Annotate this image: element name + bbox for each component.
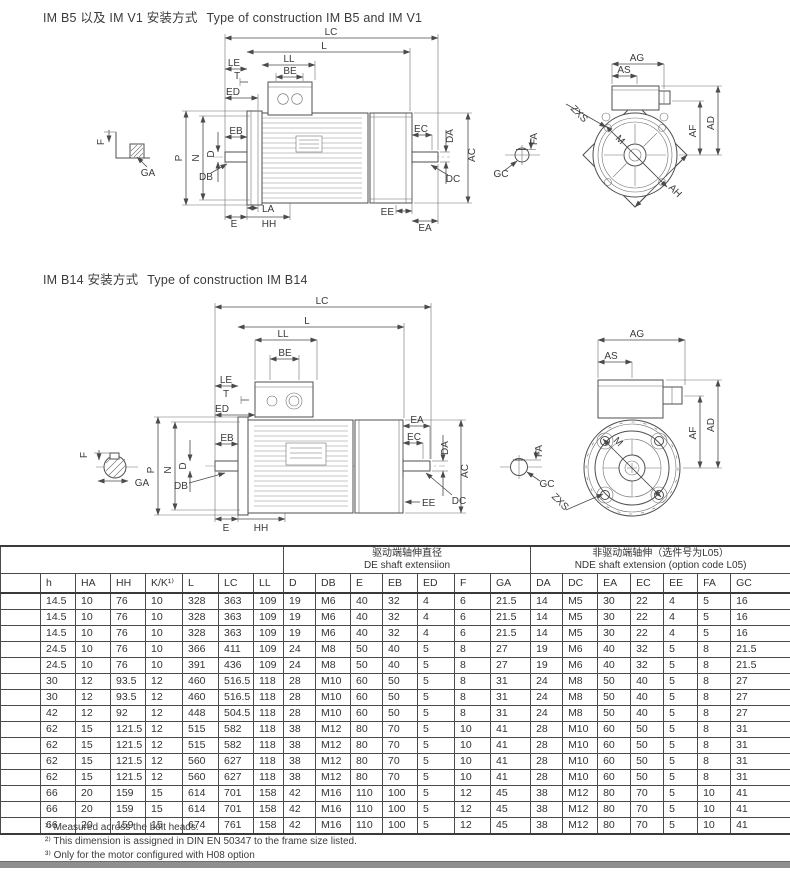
dim-p-label: P [146,466,157,473]
dim-ll-label: LL [283,54,295,65]
dim-t-label: T [234,71,240,82]
table-cell: 40 [631,689,664,705]
table-cell: 12 [76,705,111,721]
table-cell: 6 [455,609,491,625]
table-cell: 5 [418,689,455,705]
table-cell: 41 [491,737,531,753]
table-cell: 15 [76,769,111,785]
table-cell [1,705,41,721]
table-cell: 45 [491,801,531,817]
table-cell: 12 [146,721,183,737]
dim-dc-label: DC [452,496,466,507]
table-cell [1,721,41,737]
dim-da-label: DA [445,129,456,143]
dim-t-label: T [223,389,229,400]
table-cell: 80 [351,769,383,785]
table-cell: M12 [316,721,351,737]
table-cell: M10 [563,753,598,769]
table-cell: 14 [531,609,563,625]
b5-flange [247,111,262,205]
table-cell: 70 [631,785,664,801]
dim-da-label: DA [440,441,451,455]
table-cell: 41 [731,785,790,801]
table-cell: 12 [146,769,183,785]
table-cell: M8 [563,673,598,689]
catalog-page: { "sections": [ {"title_zh": "IM B5 以及 I… [0,0,790,871]
table-cell: 19 [284,609,316,625]
table-cell: M6 [316,609,351,625]
table-cell: 50 [598,705,631,721]
table-cell: 40 [631,673,664,689]
dim-lc-label: LC [325,27,338,38]
table-body: 14.510761032836310919M640324621.514M5302… [1,593,790,834]
table-cell: 30 [41,689,76,705]
table-cell: 28 [531,769,563,785]
table-cell: M10 [316,689,351,705]
table-cell: 31 [731,737,790,753]
table-cell: 24 [284,657,316,673]
table-cell: 60 [598,737,631,753]
dim-db-label: DB [174,481,188,492]
table-cell: 8 [698,721,731,737]
dim-d-label: D [178,462,189,469]
dim-e-label: E [223,523,230,534]
table-cell: M12 [563,817,598,834]
table-cell: M8 [316,641,351,657]
table-row: 66201591561470115842M161101005124538M128… [1,801,790,817]
table-cell: 40 [631,705,664,721]
table-cell: 28 [531,753,563,769]
col-header-db: DB [316,573,351,593]
dim-gc-label: GC [494,169,509,180]
footnote-1: ¹⁾ Measured across the bolt heads. [45,821,357,835]
table-cell: 50 [598,673,631,689]
table-cell: 8 [698,641,731,657]
table-cell: 15 [76,721,111,737]
table-cell: 32 [631,641,664,657]
table-cell: 92 [111,705,146,721]
table-cell: 363 [219,609,254,625]
table-cell: 582 [219,737,254,753]
table-cell: 42 [284,785,316,801]
table-cell: 24 [284,641,316,657]
section2-title-en: Type of construction IM B14 [147,273,307,287]
table-cell: 14.5 [41,593,76,610]
group-nde-en: NDE shaft extension (option code L05) [533,560,788,572]
table-cell: 328 [183,625,219,641]
dim-zxs-label: ZXS [549,491,571,513]
footnotes: ¹⁾ Measured across the bolt heads. ²⁾ Th… [45,821,357,862]
table-cell: M6 [316,625,351,641]
table-cell: 158 [254,801,284,817]
table-cell: 14 [531,625,563,641]
table-cell: 12 [455,785,491,801]
table-cell: 8 [698,769,731,785]
table-cell: 24 [531,673,563,689]
table-cell: 40 [598,657,631,673]
table-row: 301293.512460516.511828M106050583124M850… [1,689,790,705]
table-cell: 21.5 [491,625,531,641]
table-cell: 50 [351,641,383,657]
table-cell: 4 [418,625,455,641]
table-cell: 12 [146,753,183,769]
table-cell: 31 [731,769,790,785]
table-cell: 8 [455,673,491,689]
col-header-hh: HH [111,573,146,593]
table-cell: 10 [76,609,111,625]
table-cell: 5 [664,689,698,705]
col-header-l: L [183,573,219,593]
dim-ec-label: EC [414,124,428,135]
table-cell: 19 [531,641,563,657]
col-header-ed: ED [418,573,455,593]
table-cell: 70 [383,737,418,753]
table-cell: 24.5 [41,641,76,657]
table-cell: 38 [531,817,563,834]
table-cell: 10 [146,641,183,657]
table-cell: M8 [316,657,351,673]
table-cell: 40 [351,593,383,610]
table-cell: 27 [731,705,790,721]
table-cell [1,801,41,817]
table-cell: 50 [351,657,383,673]
dim-eb-label: EB [229,126,243,137]
table-cell: 5 [418,737,455,753]
dim-ec-label: EC [407,432,421,443]
table-cell: 5 [418,801,455,817]
table-cell: 10 [76,657,111,673]
table-cell: 5 [418,785,455,801]
table-cell: 5 [664,641,698,657]
table-cell: 5 [664,737,698,753]
table-row: 14.510761032836310919M640324621.514M5302… [1,609,790,625]
table-cell: 93.5 [111,673,146,689]
table-cell: 12 [455,801,491,817]
col-header-h: h [41,573,76,593]
table-cell: 27 [731,673,790,689]
table-cell: 19 [284,625,316,641]
group-blank-cell [1,546,284,573]
table-cell: 10 [146,625,183,641]
page-bottom-bar [0,861,790,868]
table-cell: 24 [531,705,563,721]
table-cell: 5 [664,721,698,737]
nameplate [286,443,326,465]
dim-n-label: N [191,154,202,161]
table-cell: 40 [383,657,418,673]
table-cell [1,817,41,834]
table-cell: 5 [418,657,455,673]
keyway-detail-b5 [116,132,150,158]
table-cell: 118 [254,673,284,689]
dim-ga-label: GA [135,478,150,489]
table-cell: 159 [111,801,146,817]
table-cell: 22 [631,625,664,641]
dim-ee-label: EE [381,207,395,218]
table-cell: 4 [418,609,455,625]
table-cell: 50 [631,753,664,769]
dim-ed-label: ED [226,87,240,98]
de-shaft [215,461,238,471]
col-header-eb: EB [383,573,418,593]
table-cell [1,593,41,610]
table-cell: 627 [219,753,254,769]
table-cell: 10 [146,609,183,625]
table-cell: 5 [664,657,698,673]
table-cell: 515 [183,737,219,753]
table-cell: 40 [351,625,383,641]
terminal-box-front [612,86,659,110]
table-cell: M6 [563,641,598,657]
table-cell: M10 [316,705,351,721]
table-cell: 62 [41,769,76,785]
group-de-header: 驱动端轴伸直径 DE shaft extensiion [284,546,531,573]
table-cell: 15 [146,801,183,817]
table-cell: 10 [76,625,111,641]
table-cell: 8 [455,705,491,721]
table-cell: 28 [284,673,316,689]
table-cell: 5 [664,705,698,721]
table-cell: 21.5 [731,657,790,673]
table-cell: 10 [698,817,731,834]
table-cell: 448 [183,705,219,721]
table-cell: 70 [631,801,664,817]
dim-as-label: AS [617,65,631,76]
table-cell: 12 [146,689,183,705]
table-cell: 121.5 [111,737,146,753]
table-cell [1,625,41,641]
table-row: 6215121.51251558211838M1280705104128M106… [1,721,790,737]
table-cell: 21.5 [731,641,790,657]
col-header-da: DA [531,573,563,593]
dim-af-label: AF [688,125,699,138]
table-cell: 76 [111,609,146,625]
fan-cowl [355,420,403,513]
table-cell: 21.5 [491,593,531,610]
table-cell: 10 [455,753,491,769]
table-cell: 80 [598,801,631,817]
table-cell: 12 [455,817,491,834]
table-cell: 70 [383,769,418,785]
diagram-im-b14: LC L LL BE LE T ED EB P N D DB F GA E HH… [0,288,790,543]
table-cell: 14.5 [41,625,76,641]
table-cell: 80 [351,753,383,769]
table-cell: 109 [254,641,284,657]
table-cell: 10 [455,721,491,737]
table-row: 24.510761036641110924M85040582719M640325… [1,641,790,657]
table-cell: M5 [563,625,598,641]
table-cell: 32 [383,609,418,625]
table-cell: 328 [183,609,219,625]
table-cell: 60 [351,689,383,705]
table-cell: 10 [455,737,491,753]
table-cell: 38 [284,753,316,769]
table-row: 301293.512460516.511828M106050583124M850… [1,673,790,689]
table-cell: 20 [76,801,111,817]
table-cell: 6 [455,625,491,641]
table-cell: 50 [383,673,418,689]
table-cell: 40 [383,641,418,657]
diagram-im-b5-v1: LC L LL BE LE T ED EB P N D DB F GA LA E… [0,24,790,250]
table-cell: 20 [76,785,111,801]
table-cell: M8 [563,705,598,721]
table-cell: 41 [491,721,531,737]
table-cell: 70 [631,817,664,834]
table-cell: M12 [316,737,351,753]
col-header-ha: HA [76,573,111,593]
col-header-ee: EE [664,573,698,593]
table-cell: M16 [316,785,351,801]
table-cell: 40 [351,609,383,625]
table-cell: 16 [731,593,790,610]
table-cell: 50 [383,705,418,721]
dim-dc-label: DC [446,174,460,185]
table-cell: 109 [254,609,284,625]
table-cell: 28 [284,705,316,721]
table-cell: M16 [316,801,351,817]
table-cell: 8 [698,737,731,753]
table-cell: 118 [254,721,284,737]
col-header-ga: GA [491,573,531,593]
table-cell: 8 [698,657,731,673]
table-cell: 28 [284,689,316,705]
table-cell: 50 [631,769,664,785]
table-cell: 12 [76,673,111,689]
table-cell: 614 [183,801,219,817]
table-cell: 516.5 [219,689,254,705]
table-cell: M5 [563,593,598,610]
dim-d-label: D [206,150,217,157]
table-cell: 31 [491,705,531,721]
col-header-ec: EC [631,573,664,593]
table-cell: 5 [698,609,731,625]
table-cell: 93.5 [111,689,146,705]
table-cell: 28 [531,737,563,753]
dim-ga-label: GA [141,168,156,179]
table-cell: 5 [418,705,455,721]
table-cell: 70 [383,721,418,737]
table-row: 6215121.51256062711838M1280705104128M106… [1,769,790,785]
table-cell: 19 [284,593,316,610]
table-cell: 5 [418,641,455,657]
table-row: 66201591561470115842M161101005124538M128… [1,785,790,801]
table-cell: 118 [254,737,284,753]
table-cell: 22 [631,609,664,625]
table-row: 14.510761032836310919M640324621.514M5302… [1,593,790,610]
table-cell: 582 [219,721,254,737]
de-shaft [225,152,247,162]
table-cell: 50 [598,689,631,705]
table-cell: 38 [284,737,316,753]
table-cell: 31 [491,689,531,705]
table-cell: 6 [455,593,491,610]
table-cell: 460 [183,673,219,689]
table-cell: 411 [219,641,254,657]
table-cell: 16 [731,609,790,625]
table-cell: 10 [76,593,111,610]
group-nde-header: 非驱动端轴伸（选件号为L05） NDE shaft extension (opt… [531,546,790,573]
table-cell: 76 [111,641,146,657]
table-row: 42129212448504.511828M106050583124M85040… [1,705,790,721]
table-cell: 560 [183,769,219,785]
dim-l-label: L [321,41,327,52]
table-cell: 363 [219,593,254,610]
section2-title: IM B14 安装方式Type of construction IM B14 [43,269,308,288]
table-cell: 76 [111,657,146,673]
table-cell: 62 [41,737,76,753]
table-cell: M6 [316,593,351,610]
table-cell: 10 [146,657,183,673]
table-cell: 12 [76,689,111,705]
dim-ee-label: EE [422,498,436,509]
dim-gc-label: GC [540,479,555,490]
table-cell: 14 [531,593,563,610]
dim-l-label: L [304,316,310,327]
dim-ea-label: EA [410,415,424,426]
dim-ad-label: AD [706,418,717,432]
dim-p-label: P [174,154,185,161]
table-cell: 118 [254,753,284,769]
table-cell: M5 [563,609,598,625]
table-cell: 5 [418,817,455,834]
dim-ag-label: AG [630,53,645,64]
table-cell: 15 [76,737,111,753]
table-cell: 8 [698,673,731,689]
dim-f-label: F [96,139,107,145]
table-cell: M12 [563,801,598,817]
table-cell: 80 [598,785,631,801]
table-column-header-row: hHAHHK/K¹⁾LLCLLDDBEEBEDFGADADCEAECEEFAGC [1,573,790,593]
table-cell: 40 [598,641,631,657]
table-cell: 45 [491,785,531,801]
col-header-lc: LC [219,573,254,593]
table-cell: 5 [664,801,698,817]
table-cell: 110 [351,801,383,817]
dim-hh-label: HH [254,523,268,534]
table-cell: 41 [491,769,531,785]
table-cell: 701 [219,785,254,801]
table-cell: 5 [664,753,698,769]
table-cell: 5 [698,625,731,641]
table-cell: 80 [598,817,631,834]
section2-title-zh: IM B14 安装方式 [43,273,138,287]
col-header-ll: LL [254,573,284,593]
table-cell: 10 [698,801,731,817]
table-cell: 5 [698,593,731,610]
col-header-gc: GC [731,573,790,593]
table-cell: 12 [146,673,183,689]
table-cell: 118 [254,689,284,705]
dim-be-label: BE [278,348,292,359]
table-cell: 121.5 [111,769,146,785]
table-cell: 100 [383,785,418,801]
table-row: 6215121.51256062711838M1280705104128M106… [1,753,790,769]
table-cell: 10 [146,593,183,610]
table-cell: M12 [316,753,351,769]
dim-le-label: LE [220,375,233,386]
table-cell: 614 [183,785,219,801]
dim-f-label: F [79,452,90,458]
dim-db-label: DB [199,172,213,183]
table-cell: 5 [418,721,455,737]
table-cell: 100 [383,801,418,817]
table-cell: 10 [76,641,111,657]
table-cell: 363 [219,625,254,641]
table-cell: 118 [254,769,284,785]
table-cell: 32 [383,625,418,641]
table-cell: 31 [731,721,790,737]
table-cell: 32 [631,657,664,673]
